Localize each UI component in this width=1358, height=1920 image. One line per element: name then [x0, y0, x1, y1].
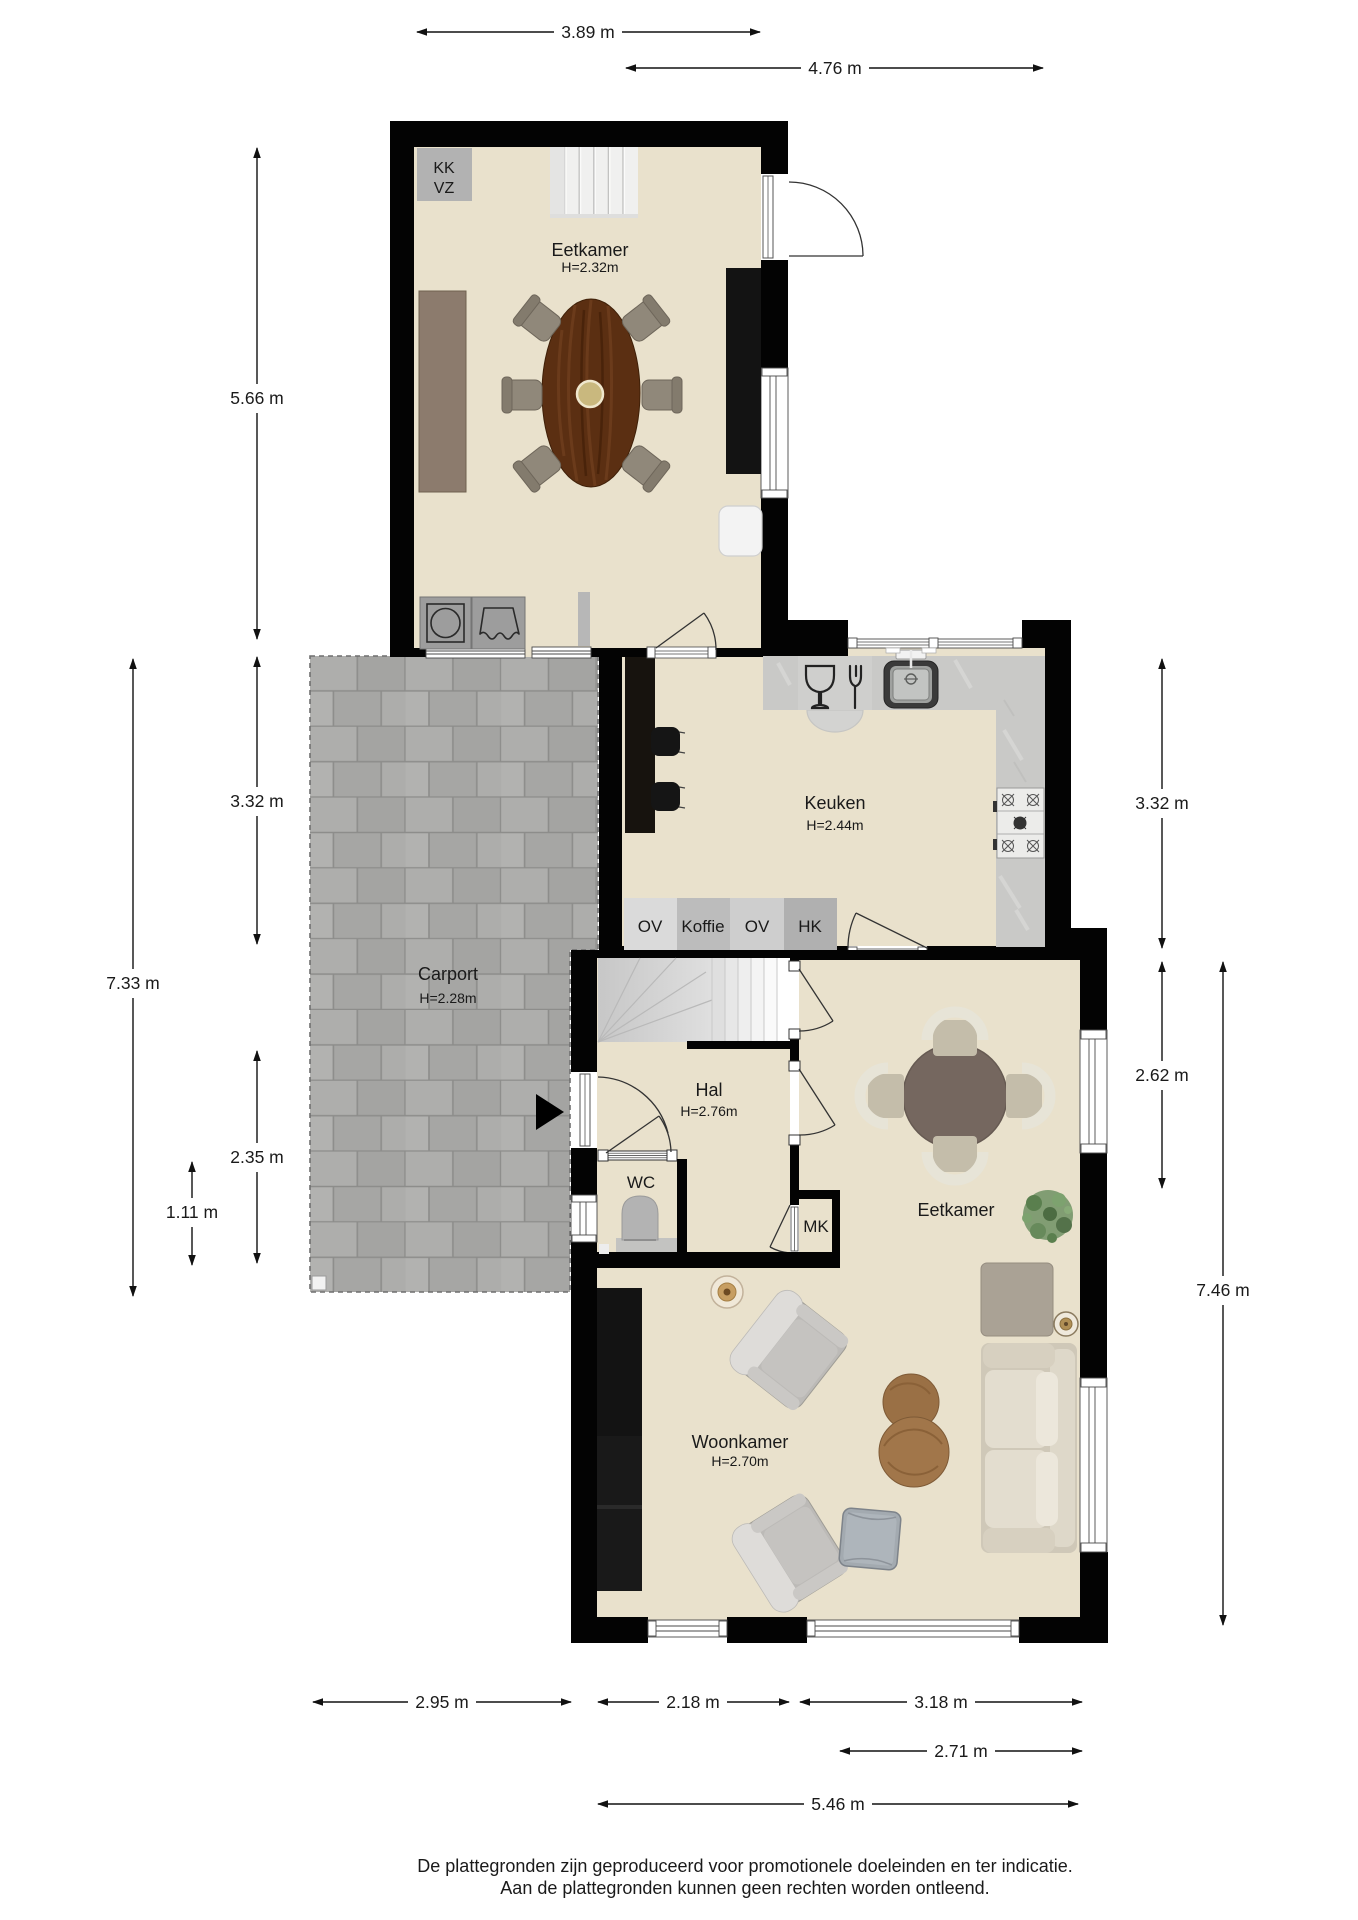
svg-text:3.18 m: 3.18 m	[914, 1692, 968, 1712]
svg-text:Keuken: Keuken	[804, 793, 865, 813]
svg-text:2.18 m: 2.18 m	[666, 1692, 720, 1712]
svg-text:H=2.70m: H=2.70m	[711, 1453, 768, 1469]
svg-text:VZ: VZ	[434, 180, 455, 197]
svg-text:7.33 m: 7.33 m	[106, 973, 160, 993]
svg-text:2.95 m: 2.95 m	[415, 1692, 469, 1712]
svg-text:KK: KK	[433, 160, 455, 177]
svg-text:De plattegronden zijn geproduc: De plattegronden zijn geproduceerd voor …	[417, 1856, 1072, 1876]
svg-text:H=2.44m: H=2.44m	[806, 817, 863, 833]
svg-text:1.11 m: 1.11 m	[166, 1202, 218, 1222]
svg-text:Hal: Hal	[695, 1080, 722, 1100]
svg-text:Woonkamer: Woonkamer	[692, 1432, 789, 1452]
svg-text:Koffie: Koffie	[681, 917, 724, 936]
svg-text:OV: OV	[638, 917, 663, 936]
svg-text:H=2.28m: H=2.28m	[419, 990, 476, 1006]
svg-text:HK: HK	[798, 917, 822, 936]
svg-text:Eetkamer: Eetkamer	[917, 1200, 994, 1220]
svg-text:3.89 m: 3.89 m	[561, 22, 615, 42]
svg-text:3.32 m: 3.32 m	[1135, 793, 1189, 813]
svg-text:7.46 m: 7.46 m	[1196, 1280, 1250, 1300]
svg-text:Carport: Carport	[418, 964, 478, 984]
svg-text:5.66 m: 5.66 m	[230, 388, 284, 408]
svg-text:OV: OV	[745, 917, 770, 936]
svg-text:4.76 m: 4.76 m	[808, 58, 862, 78]
svg-text:2.62 m: 2.62 m	[1135, 1065, 1189, 1085]
svg-text:2.35 m: 2.35 m	[230, 1147, 284, 1167]
svg-text:3.32 m: 3.32 m	[230, 791, 284, 811]
svg-text:5.46 m: 5.46 m	[811, 1794, 865, 1814]
svg-text:H=2.76m: H=2.76m	[680, 1103, 737, 1119]
svg-text:WC: WC	[627, 1173, 655, 1192]
svg-text:2.71 m: 2.71 m	[934, 1741, 988, 1761]
svg-text:Eetkamer: Eetkamer	[551, 240, 628, 260]
svg-text:H=2.32m: H=2.32m	[561, 259, 618, 275]
svg-text:Aan de plattegronden kunnen ge: Aan de plattegronden kunnen geen rechten…	[500, 1878, 989, 1898]
svg-text:MK: MK	[803, 1217, 829, 1236]
